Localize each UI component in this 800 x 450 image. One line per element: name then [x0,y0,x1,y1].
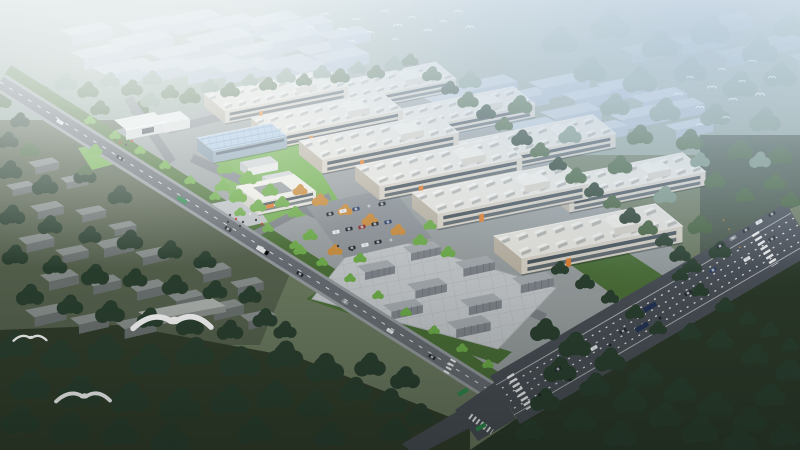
aerial-rendering-industrial-park: Aerial architectural rendering of an ind… [0,0,800,450]
dusk-vignette-bottom [0,0,800,450]
